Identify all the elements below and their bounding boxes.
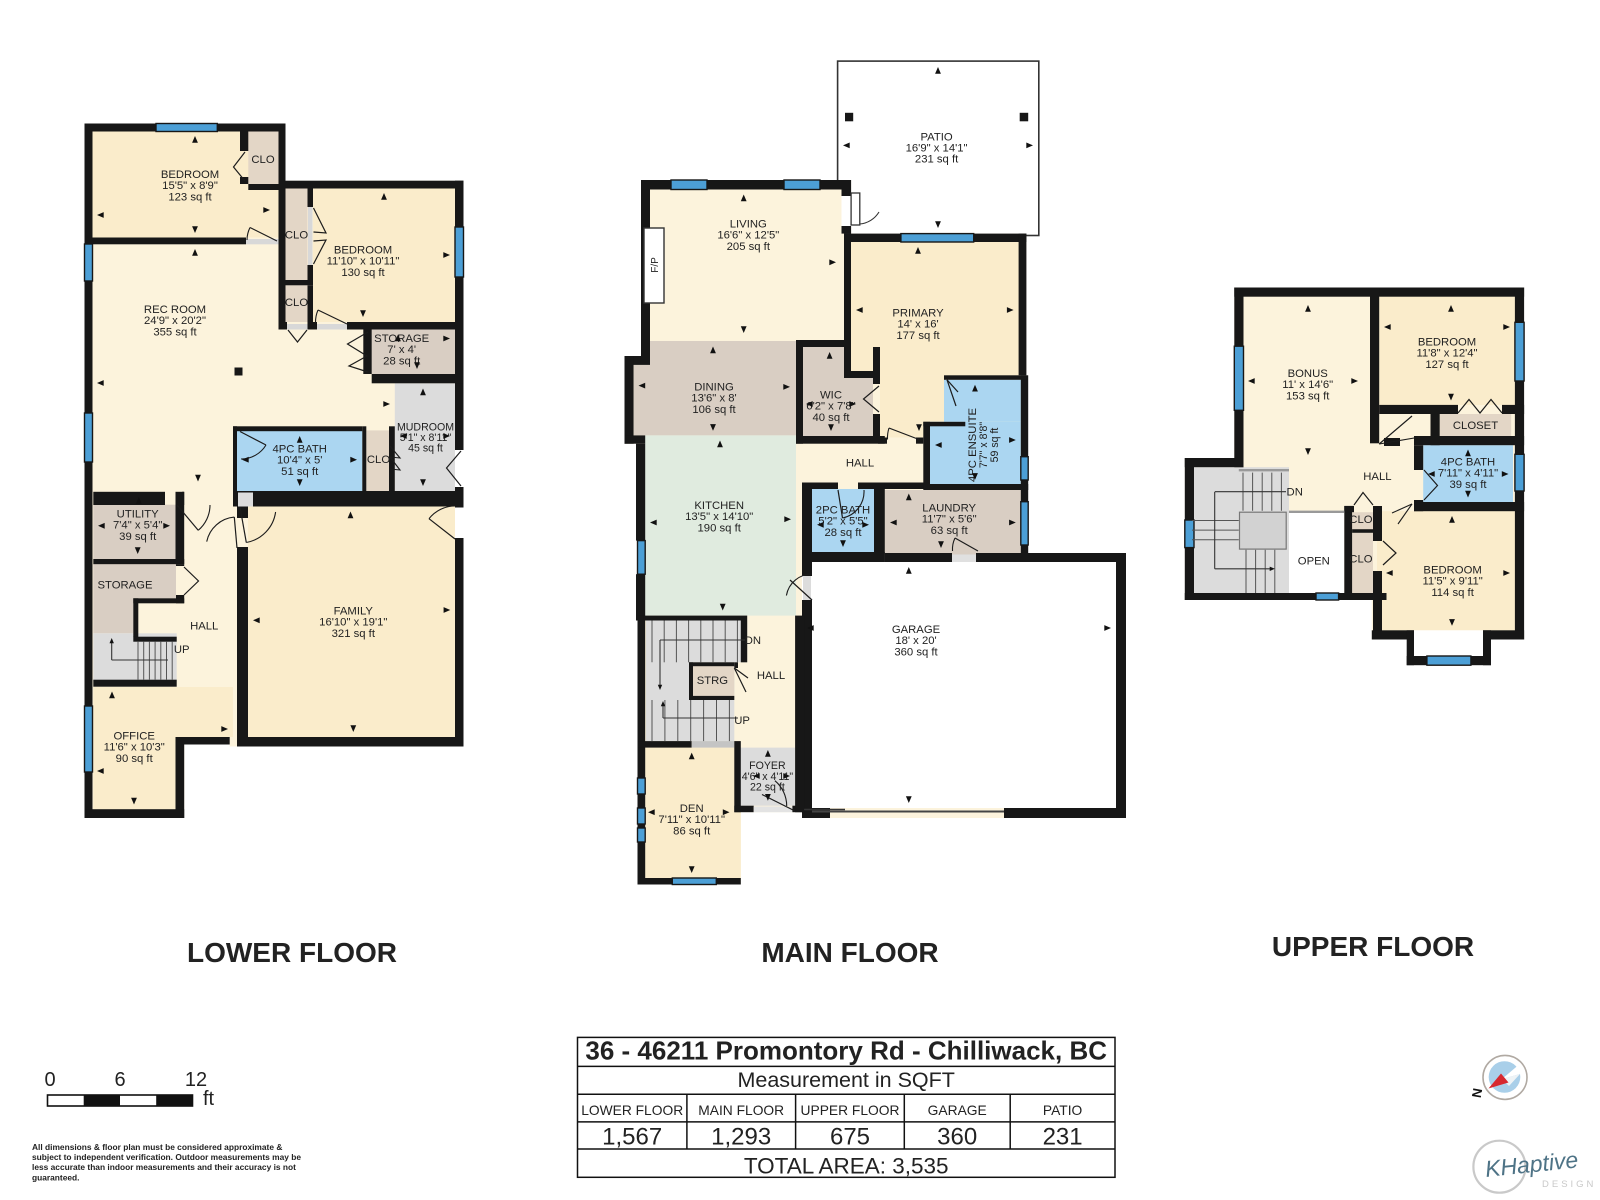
svg-text:MAIN FLOOR: MAIN FLOOR [698, 1103, 784, 1118]
svg-text:UTILITY: UTILITY [117, 509, 160, 521]
svg-text:CLO: CLO [285, 297, 308, 309]
svg-text:LOWER FLOOR: LOWER FLOOR [187, 937, 397, 968]
svg-text:22 sq ft: 22 sq ft [750, 781, 785, 793]
svg-text:OPEN: OPEN [1298, 556, 1330, 568]
svg-text:40 sq ft: 40 sq ft [812, 412, 850, 424]
svg-text:11'6" x 10'3": 11'6" x 10'3" [104, 742, 165, 754]
svg-text:CLOSET: CLOSET [1453, 420, 1498, 432]
svg-text:177 sq ft: 177 sq ft [896, 330, 940, 342]
svg-text:DINING: DINING [694, 382, 734, 394]
svg-text:36 - 46211 Promontory Rd - Chi: 36 - 46211 Promontory Rd - Chilliwack, B… [585, 1036, 1107, 1066]
svg-text:KITCHEN: KITCHEN [694, 500, 744, 512]
svg-text:UPPER FLOOR: UPPER FLOOR [801, 1103, 900, 1118]
svg-text:205 sq ft: 205 sq ft [727, 241, 771, 253]
svg-text:HALL: HALL [1363, 471, 1391, 483]
svg-text:ft: ft [203, 1088, 215, 1110]
svg-text:360: 360 [937, 1124, 977, 1151]
svg-text:BEDROOM: BEDROOM [1418, 337, 1476, 349]
svg-text:STORAGE: STORAGE [374, 333, 429, 345]
svg-text:7'11" x 4'11": 7'11" x 4'11" [1438, 468, 1498, 480]
svg-text:guaranteed.: guaranteed. [32, 1172, 79, 1182]
svg-text:UP: UP [174, 644, 190, 656]
svg-text:DN: DN [1287, 486, 1303, 498]
svg-text:DN: DN [745, 635, 761, 647]
svg-text:MAIN FLOOR: MAIN FLOOR [761, 937, 938, 968]
svg-text:BEDROOM: BEDROOM [334, 245, 392, 257]
svg-text:HALL: HALL [846, 458, 874, 470]
svg-text:HALL: HALL [757, 670, 785, 682]
svg-text:PRIMARY: PRIMARY [892, 308, 944, 320]
svg-text:51 sq ft: 51 sq ft [281, 466, 319, 478]
svg-text:127 sq ft: 127 sq ft [1425, 359, 1469, 371]
svg-text:24'9" x 20'2": 24'9" x 20'2" [144, 315, 206, 327]
svg-text:LOWER FLOOR: LOWER FLOOR [581, 1103, 683, 1118]
svg-text:11'5" x 9'11": 11'5" x 9'11" [1422, 576, 1482, 588]
svg-text:OFFICE: OFFICE [113, 731, 155, 743]
svg-text:63 sq ft: 63 sq ft [931, 525, 969, 537]
svg-text:355 sq ft: 355 sq ft [153, 326, 197, 338]
svg-text:UP: UP [734, 715, 750, 727]
svg-text:59 sq ft: 59 sq ft [989, 428, 1001, 463]
svg-text:123 sq ft: 123 sq ft [168, 191, 212, 203]
svg-text:106 sq ft: 106 sq ft [692, 404, 736, 416]
svg-text:STRG: STRG [697, 675, 728, 687]
svg-text:UPPER FLOOR: UPPER FLOOR [1272, 931, 1474, 962]
svg-text:HALL: HALL [190, 621, 218, 633]
svg-text:130 sq ft: 130 sq ft [341, 267, 385, 279]
svg-text:18' x 20': 18' x 20' [895, 635, 936, 647]
svg-text:231: 231 [1043, 1124, 1083, 1151]
svg-text:16'10" x 19'1": 16'10" x 19'1" [319, 617, 387, 629]
svg-text:190 sq ft: 190 sq ft [698, 522, 742, 534]
svg-text:39 sq ft: 39 sq ft [1449, 479, 1487, 491]
svg-text:BONUS: BONUS [1288, 368, 1329, 380]
svg-text:F/P: F/P [650, 257, 661, 273]
svg-text:1,567: 1,567 [602, 1124, 662, 1151]
svg-text:231 sq ft: 231 sq ft [915, 154, 959, 166]
svg-text:LAUNDRY: LAUNDRY [922, 503, 976, 515]
svg-text:Measurement in SQFT: Measurement in SQFT [737, 1068, 954, 1092]
svg-text:28 sq ft: 28 sq ft [383, 355, 421, 367]
svg-text:CLO: CLO [1349, 553, 1372, 565]
svg-text:1,293: 1,293 [711, 1124, 771, 1151]
svg-text:16'6" x 12'5": 16'6" x 12'5" [717, 230, 779, 242]
svg-text:less accurate than indoor meas: less accurate than indoor measurements a… [32, 1162, 296, 1172]
svg-text:5'2" x 5'5": 5'2" x 5'5" [818, 516, 867, 528]
svg-text:0: 0 [44, 1069, 55, 1091]
svg-text:14' x 16': 14' x 16' [897, 319, 938, 331]
svg-text:11'7" x 5'6": 11'7" x 5'6" [922, 514, 977, 526]
svg-text:STORAGE: STORAGE [97, 580, 152, 592]
svg-text:All dimensions & floor plan mu: All dimensions & floor plan must be cons… [32, 1142, 282, 1152]
svg-text:11'10" x 10'11": 11'10" x 10'11" [327, 256, 400, 268]
svg-text:7'11" x 10'11": 7'11" x 10'11" [658, 814, 725, 826]
svg-text:6: 6 [114, 1069, 125, 1091]
svg-text:4PC BATH: 4PC BATH [272, 444, 326, 456]
svg-text:153 sq ft: 153 sq ft [1286, 390, 1330, 402]
svg-text:WIC: WIC [820, 390, 842, 402]
svg-text:11' x 14'6": 11' x 14'6" [1282, 379, 1333, 391]
svg-text:BEDROOM: BEDROOM [161, 169, 219, 181]
svg-text:39 sq ft: 39 sq ft [119, 531, 157, 543]
svg-text:DESIGN: DESIGN [1542, 1179, 1596, 1190]
svg-text:CLO: CLO [251, 154, 274, 166]
svg-text:45 sq ft: 45 sq ft [408, 442, 443, 454]
svg-text:GARAGE: GARAGE [892, 624, 941, 636]
svg-text:7'4" x 5'4": 7'4" x 5'4" [113, 520, 162, 532]
svg-text:675: 675 [830, 1124, 870, 1151]
svg-text:7' x 4': 7' x 4' [387, 344, 416, 356]
svg-text:13'6" x 8': 13'6" x 8' [691, 393, 736, 405]
svg-text:FAMILY: FAMILY [334, 606, 374, 618]
svg-text:15'5" x 8'9": 15'5" x 8'9" [162, 180, 218, 192]
svg-text:114 sq ft: 114 sq ft [1431, 587, 1474, 599]
svg-text:CLO: CLO [367, 454, 390, 466]
svg-text:BEDROOM: BEDROOM [1423, 564, 1481, 576]
svg-text:REC ROOM: REC ROOM [144, 304, 206, 316]
svg-text:CLO: CLO [285, 230, 308, 242]
svg-text:28 sq ft: 28 sq ft [824, 527, 862, 539]
svg-text:10'4" x 5': 10'4" x 5' [277, 455, 322, 467]
svg-text:321 sq ft: 321 sq ft [332, 628, 376, 640]
svg-text:2PC BATH: 2PC BATH [816, 505, 870, 517]
svg-text:LIVING: LIVING [730, 219, 767, 231]
svg-text:6'2" x 7'8": 6'2" x 7'8" [806, 401, 855, 413]
svg-text:subject to independent verific: subject to independent verification. Out… [32, 1152, 301, 1162]
svg-text:CLO: CLO [1349, 514, 1372, 526]
svg-text:90 sq ft: 90 sq ft [116, 753, 154, 765]
svg-text:16'9" x 14'1": 16'9" x 14'1" [906, 143, 968, 155]
svg-text:TOTAL AREA: 3,535: TOTAL AREA: 3,535 [744, 1154, 949, 1179]
svg-text:13'5" x 14'10": 13'5" x 14'10" [685, 511, 753, 523]
svg-text:PATIO: PATIO [920, 131, 952, 143]
svg-text:DEN: DEN [680, 803, 704, 815]
svg-text:4PC BATH: 4PC BATH [1441, 457, 1495, 469]
svg-text:360 sq ft: 360 sq ft [894, 646, 938, 658]
svg-text:86 sq ft: 86 sq ft [673, 825, 711, 837]
svg-text:GARAGE: GARAGE [928, 1103, 987, 1118]
svg-text:PATIO: PATIO [1043, 1103, 1083, 1118]
svg-text:11'8" x 12'4": 11'8" x 12'4" [1416, 348, 1477, 360]
